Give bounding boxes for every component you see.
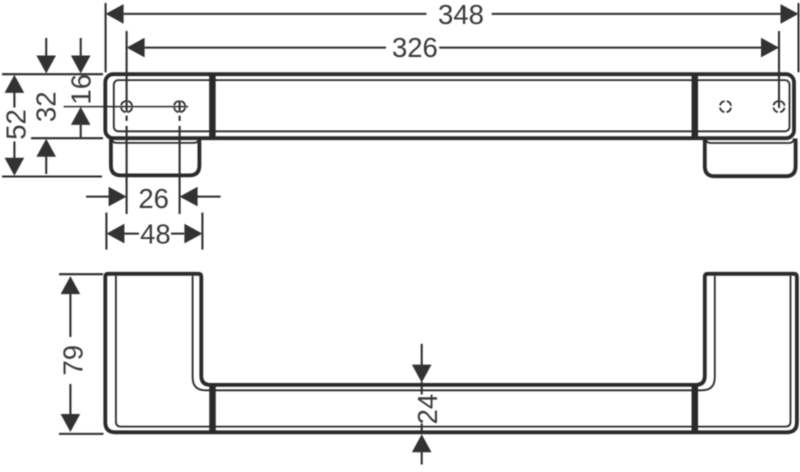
svg-text:326: 326: [392, 32, 438, 63]
svg-text:79: 79: [57, 345, 88, 376]
svg-text:348: 348: [438, 0, 484, 30]
svg-text:48: 48: [140, 219, 171, 250]
svg-text:32: 32: [31, 92, 62, 123]
svg-text:26: 26: [138, 183, 169, 214]
svg-text:16: 16: [66, 74, 97, 105]
svg-text:52: 52: [1, 109, 32, 140]
svg-text:24: 24: [412, 394, 443, 425]
